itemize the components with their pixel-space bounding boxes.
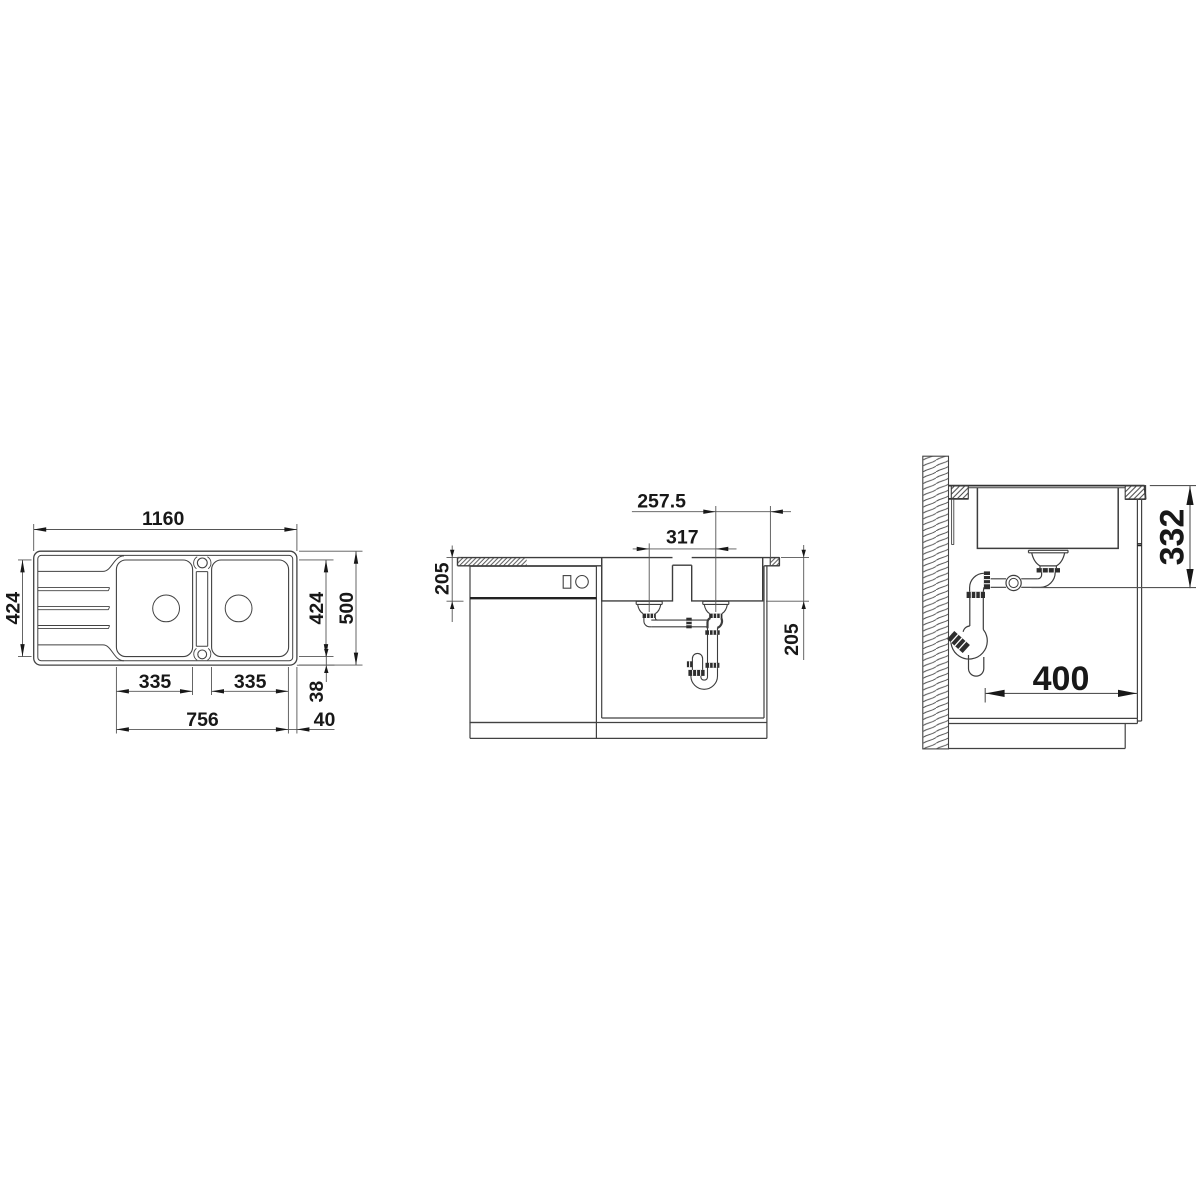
svg-text:335: 335 [234, 671, 267, 693]
svg-text:1160: 1160 [142, 508, 184, 530]
svg-text:500: 500 [336, 592, 358, 625]
svg-text:40: 40 [314, 709, 336, 731]
svg-text:205: 205 [781, 623, 803, 656]
svg-text:332: 332 [1154, 509, 1192, 566]
svg-text:335: 335 [139, 671, 172, 693]
svg-text:257.5: 257.5 [637, 491, 686, 513]
svg-text:400: 400 [1033, 660, 1090, 698]
svg-text:424: 424 [306, 592, 328, 625]
svg-text:205: 205 [432, 562, 454, 595]
svg-text:38: 38 [306, 681, 328, 703]
svg-text:317: 317 [666, 527, 699, 549]
svg-text:424: 424 [3, 592, 25, 625]
svg-text:756: 756 [186, 709, 219, 731]
